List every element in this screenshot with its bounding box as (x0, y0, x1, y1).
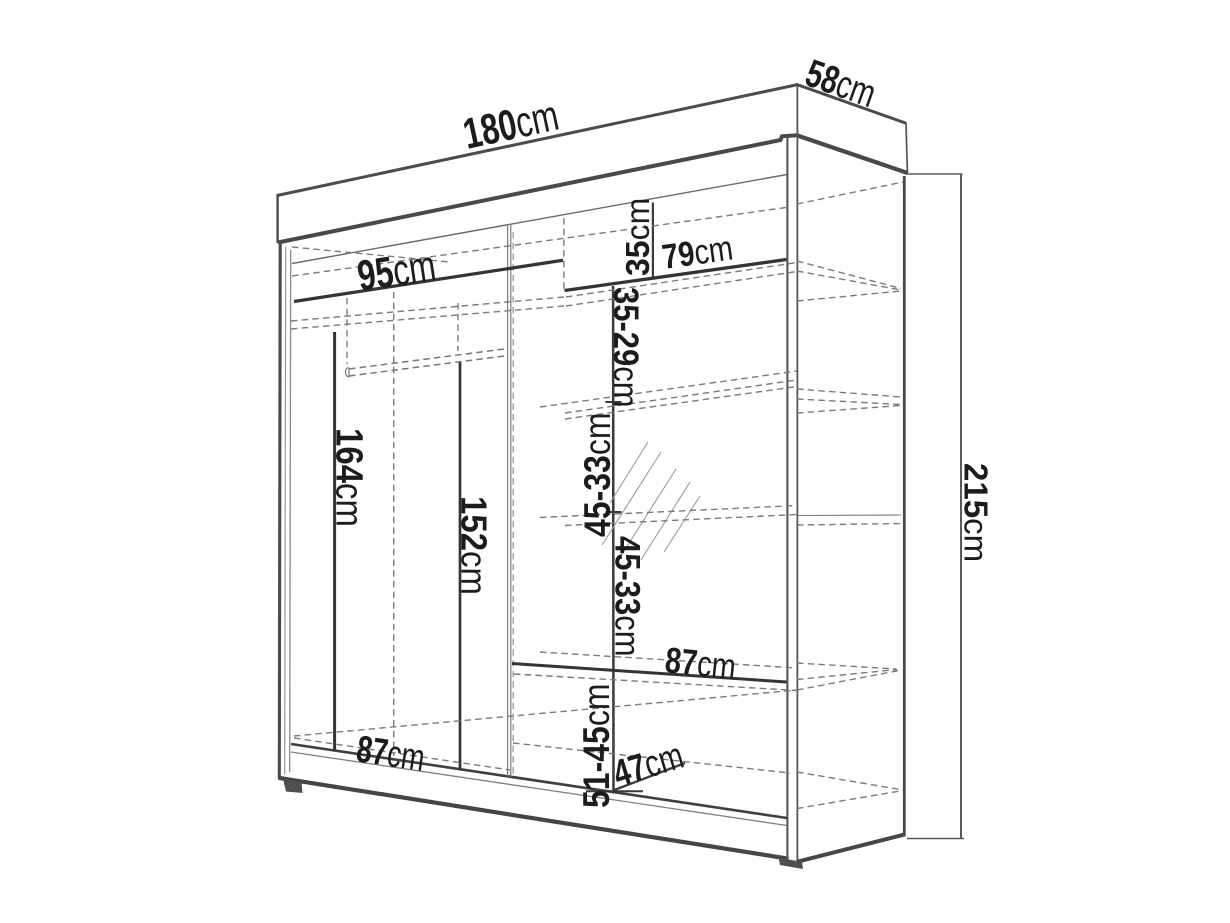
svg-text:215cm: 215cm (958, 463, 995, 562)
svg-text:45-33cm: 45-33cm (607, 536, 646, 657)
svg-text:152cm: 152cm (453, 496, 493, 595)
svg-text:35-29cm: 35-29cm (605, 287, 644, 408)
svg-text:164cm: 164cm (328, 428, 371, 527)
svg-text:35cm: 35cm (618, 198, 656, 276)
svg-text:51-45cm: 51-45cm (577, 684, 618, 808)
svg-text:45-33cm: 45-33cm (578, 413, 619, 537)
svg-text:87cm: 87cm (663, 639, 738, 687)
